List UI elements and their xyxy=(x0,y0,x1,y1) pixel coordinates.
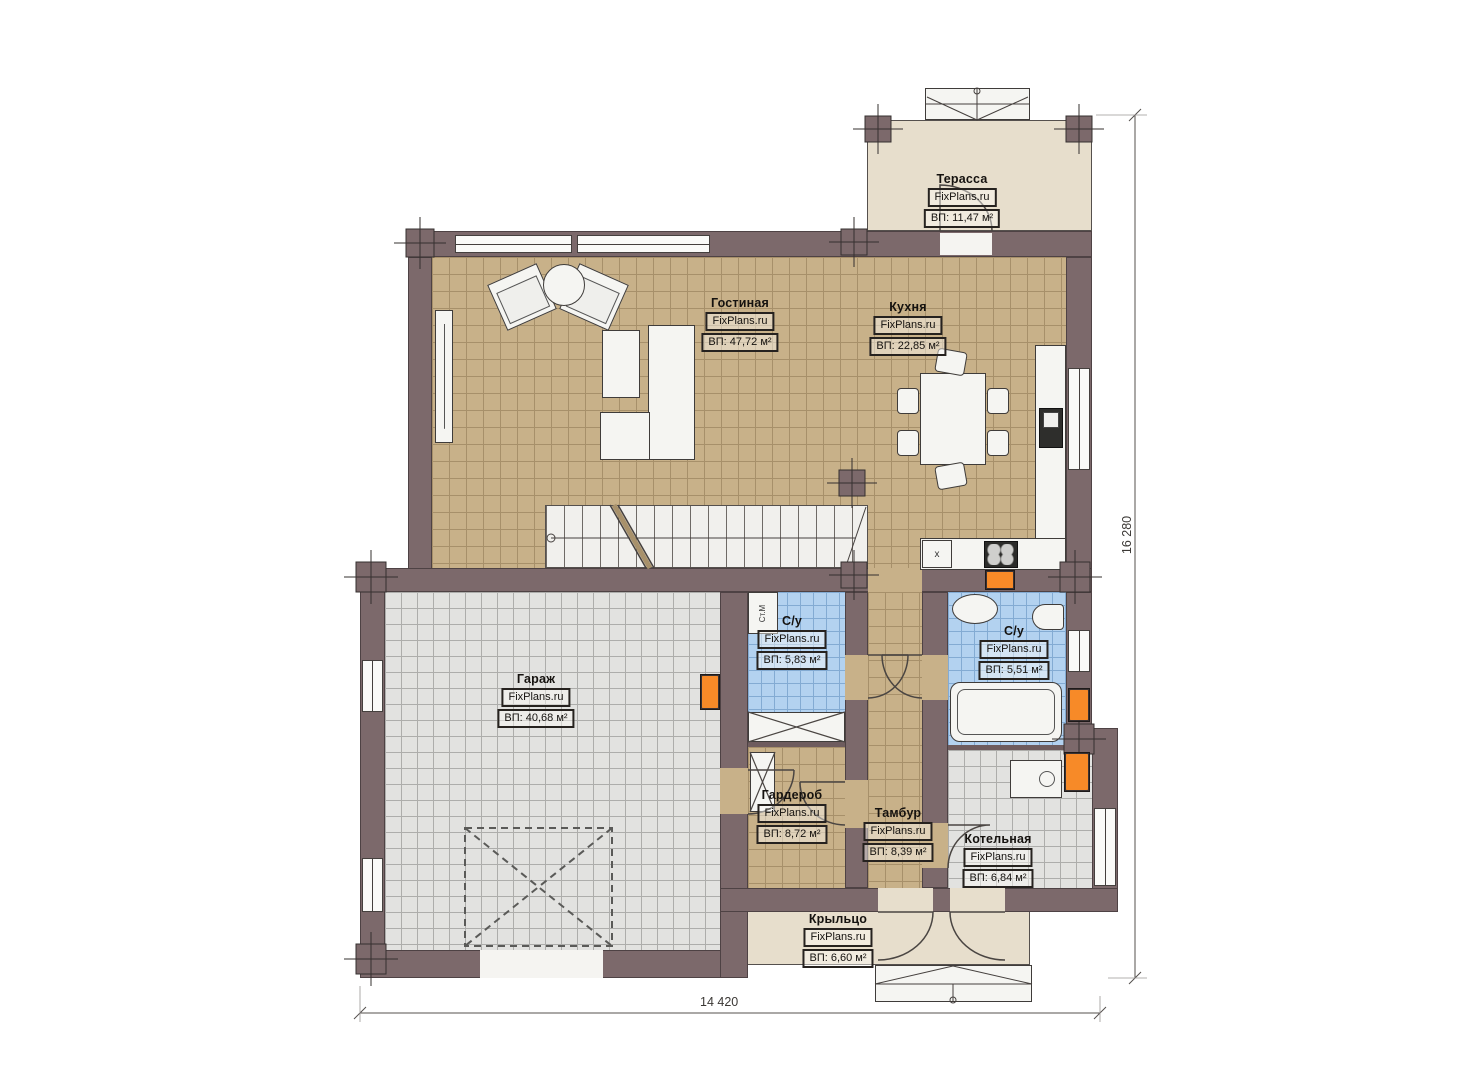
porch-steps-lines xyxy=(875,966,1032,1003)
room-label-living: Гостиная FixPlans.ru ВП: 47,72 м² xyxy=(701,296,778,352)
room-name: Гардероб xyxy=(762,788,823,802)
area-tag: ВП: 22,85 м² xyxy=(869,337,946,356)
room-name: Крыльцо xyxy=(809,912,867,926)
area-tag: ВП: 47,72 м² xyxy=(701,333,778,352)
area-tag: ВП: 6,60 м² xyxy=(802,949,873,968)
area-tag: ВП: 11,47 м² xyxy=(924,209,1000,228)
room-name: С/у xyxy=(782,614,802,628)
brand-tag: FixPlans.ru xyxy=(863,822,932,841)
room-label-vestibule: Тамбур FixPlans.ru ВП: 8,39 м² xyxy=(862,806,933,862)
room-label-terrace: Терасса FixPlans.ru ВП: 11,47 м² xyxy=(924,172,1000,228)
area-tag: ВП: 40,68 м² xyxy=(497,709,574,728)
room-name: Гостиная xyxy=(711,296,769,310)
room-label-kitchen: Кухня FixPlans.ru ВП: 22,85 м² xyxy=(869,300,946,356)
floor-plan-canvas: x Ст.М xyxy=(0,0,1473,1080)
area-tag: ВП: 6,84 м² xyxy=(962,869,1033,888)
area-tag: ВП: 5,51 м² xyxy=(978,661,1049,680)
room-label-wardrobe: Гардероб FixPlans.ru ВП: 8,72 м² xyxy=(756,788,827,844)
area-tag: ВП: 8,39 м² xyxy=(862,843,933,862)
room-label-garage: Гараж FixPlans.ru ВП: 40,68 м² xyxy=(497,672,574,728)
brand-tag: FixPlans.ru xyxy=(757,804,826,823)
radiator-kitchen-wall xyxy=(985,570,1015,590)
radiator-garage-wall xyxy=(700,674,720,710)
dimension-height: 16 280 xyxy=(1120,516,1134,554)
brand-tag: FixPlans.ru xyxy=(979,640,1048,659)
brand-tag: FixPlans.ru xyxy=(873,316,942,335)
room-name: С/у xyxy=(1004,624,1024,638)
room-label-bath1: С/у FixPlans.ru ВП: 5,83 м² xyxy=(756,614,827,670)
terrace-steps-lines xyxy=(925,88,1030,120)
brand-tag: FixPlans.ru xyxy=(501,688,570,707)
room-name: Терасса xyxy=(937,172,988,186)
brand-tag: FixPlans.ru xyxy=(757,630,826,649)
plan-linework xyxy=(0,0,1473,1080)
room-label-porch: Крыльцо FixPlans.ru ВП: 6,60 м² xyxy=(802,912,873,968)
room-label-bath2: С/у FixPlans.ru ВП: 5,51 м² xyxy=(978,624,1049,680)
brand-tag: FixPlans.ru xyxy=(927,188,996,207)
dimension-width: 14 420 xyxy=(700,995,738,1009)
area-tag: ВП: 8,72 м² xyxy=(756,825,827,844)
room-name: Кухня xyxy=(889,300,927,314)
room-label-boiler: Котельная FixPlans.ru ВП: 6,84 м² xyxy=(962,832,1033,888)
area-tag: ВП: 5,83 м² xyxy=(756,651,827,670)
stairs-lines xyxy=(547,505,866,568)
radiator-boiler-wall xyxy=(1064,752,1090,792)
room-name: Котельная xyxy=(964,832,1031,846)
brand-tag: FixPlans.ru xyxy=(803,928,872,947)
brand-tag: FixPlans.ru xyxy=(705,312,774,331)
room-name: Тамбур xyxy=(875,806,922,820)
radiator-bath2-wall xyxy=(1068,688,1090,722)
parking-dashed-area xyxy=(465,828,612,946)
brand-tag: FixPlans.ru xyxy=(963,848,1032,867)
room-name: Гараж xyxy=(517,672,555,686)
